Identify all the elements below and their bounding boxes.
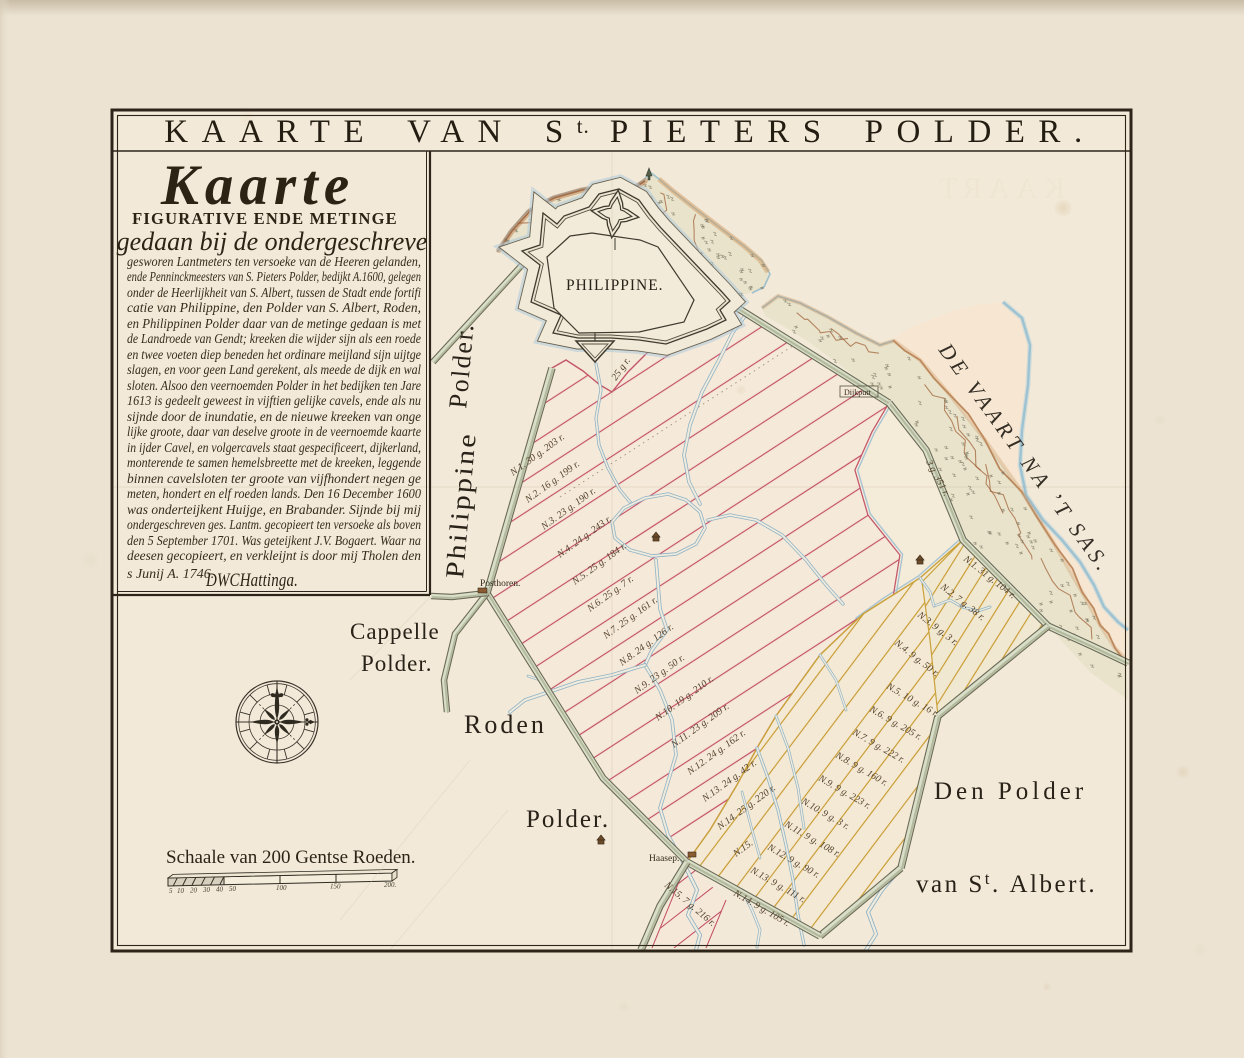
svg-text:Posthoren.: Posthoren.: [480, 579, 520, 589]
svg-text:gedaan bij de ondergeschreve: gedaan bij de ondergeschreve: [117, 227, 428, 256]
svg-text:200.: 200.: [384, 881, 397, 889]
svg-text:en Philippinen Polder daar van: en Philippinen Polder daar van de meting…: [127, 316, 421, 331]
svg-text:PHILIPPINE.: PHILIPPINE.: [566, 277, 664, 294]
svg-text:Schaale van 200 Gentse Roeden.: Schaale van 200 Gentse Roeden.: [166, 847, 416, 868]
svg-text:onder de Heerlijkheit van S. A: onder de Heerlijkheit van S. Albert, tus…: [127, 285, 421, 300]
svg-text:Den Polder: Den Polder: [934, 778, 1087, 805]
svg-text:sijnde door de inundatie, en d: sijnde door de inundatie, en de nieuwe k…: [127, 409, 421, 424]
svg-text:Cappelle: Cappelle: [350, 619, 440, 644]
svg-text:deesen gecopieert, en verkleij: deesen gecopieert, en verkleijnt is door…: [127, 548, 421, 563]
svg-text:Kaarte: Kaarte: [160, 154, 355, 217]
svg-text:en twee voeten diep beneden he: en twee voeten diep beneden het ordinare…: [127, 347, 421, 362]
svg-text:de Landroede van Gendt; kreeke: de Landroede van Gendt; kreeken die wijd…: [127, 331, 421, 346]
svg-text:30: 30: [202, 886, 211, 894]
svg-text:slagen, en voor geen Land gere: slagen, en voor geen Land gerekent, als …: [127, 362, 421, 377]
svg-text:meten, hondert en elf roeden l: meten, hondert en elf roeden lands. Den …: [127, 486, 421, 501]
svg-text:5: 5: [169, 887, 173, 895]
svg-text:1613 is gedeelt geweest in vij: 1613 is gedeelt geweest in vijftien geli…: [127, 393, 421, 408]
svg-text:monterende te samen hemelsbree: monterende te samen hemelsbreette met de…: [127, 455, 421, 470]
svg-text:lijke groote, daar van deselve: lijke groote, daar van deselve groote in…: [127, 424, 421, 439]
svg-text:was onderteijkent Huijge, en B: was onderteijkent Huijge, en Brabander. …: [127, 502, 421, 517]
svg-text:Dijkputt: Dijkputt: [844, 388, 871, 397]
svg-text:Haasep.: Haasep.: [649, 854, 679, 864]
svg-text:van St. Albert.: van St. Albert.: [916, 869, 1097, 898]
svg-text:in ijder Cavel, en volgercavel: in ijder Cavel, en volgercavels staat ge…: [127, 440, 421, 455]
svg-text:40: 40: [216, 886, 224, 894]
svg-text:Polder.: Polder.: [526, 806, 610, 833]
svg-text:150: 150: [330, 883, 341, 891]
svg-text:catie van Philippine, den Pold: catie van Philippine, den Polder van S. …: [127, 300, 421, 315]
svg-text:KAART: KAART: [933, 172, 1065, 205]
svg-text:binnen cavelsloten ter groote: binnen cavelsloten ter groote van vijfho…: [127, 471, 421, 486]
svg-text:Polder.: Polder.: [361, 651, 433, 676]
svg-text:ondergeschreven ges. Lantm. ge: ondergeschreven ges. Lantm. gecopieert t…: [127, 517, 421, 532]
svg-text:s Junij A. 1746.: s Junij A. 1746.: [127, 567, 214, 582]
svg-text:KAARTE VAN St. PIETERS POLDER.: KAARTE VAN St. PIETERS POLDER.: [164, 114, 1095, 150]
svg-text:Roden: Roden: [464, 710, 547, 739]
svg-text:20: 20: [190, 887, 198, 895]
svg-text:ende Penninckmeesters van S. P: ende Penninckmeesters van S. Pieters Pol…: [127, 269, 421, 284]
svg-text:10: 10: [177, 887, 185, 895]
svg-text:sloten. Alsoo den veernoemden: sloten. Alsoo den veernoemden Polder in …: [127, 378, 421, 393]
svg-text:FIGURATIVE ENDE METINGE: FIGURATIVE ENDE METINGE: [132, 209, 398, 228]
svg-text:100: 100: [276, 884, 287, 892]
svg-text:gesworen Lantmeters ten versoe: gesworen Lantmeters ten versoeke van de …: [127, 254, 421, 269]
svg-text:DWCHattinga.: DWCHattinga.: [205, 570, 298, 591]
svg-text:50: 50: [229, 885, 237, 893]
svg-text:den 5 September 1701. Was gete: den 5 September 1701. Was geteijkent J.V…: [127, 533, 421, 548]
